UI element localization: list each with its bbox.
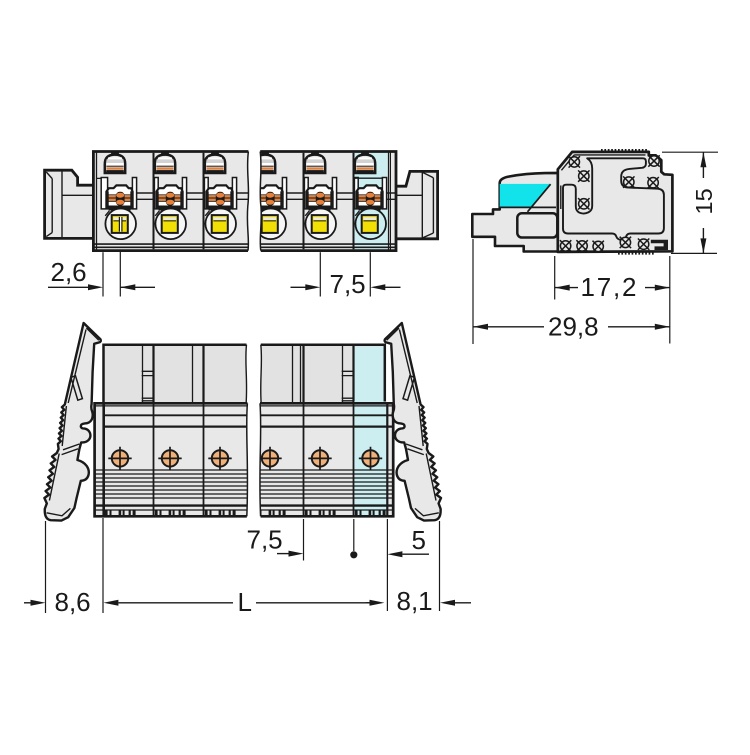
svg-text:8,6: 8,6 xyxy=(55,587,91,617)
svg-text:7,5: 7,5 xyxy=(247,525,283,555)
svg-text:29,8: 29,8 xyxy=(548,312,599,342)
svg-text:17,2: 17,2 xyxy=(581,272,639,302)
svg-text:15: 15 xyxy=(691,188,717,214)
svg-text:2,6: 2,6 xyxy=(51,257,87,287)
svg-text:7,5: 7,5 xyxy=(330,269,366,299)
svg-text:5: 5 xyxy=(412,525,426,555)
svg-text:8,1: 8,1 xyxy=(397,586,433,616)
svg-text:L: L xyxy=(238,587,252,617)
